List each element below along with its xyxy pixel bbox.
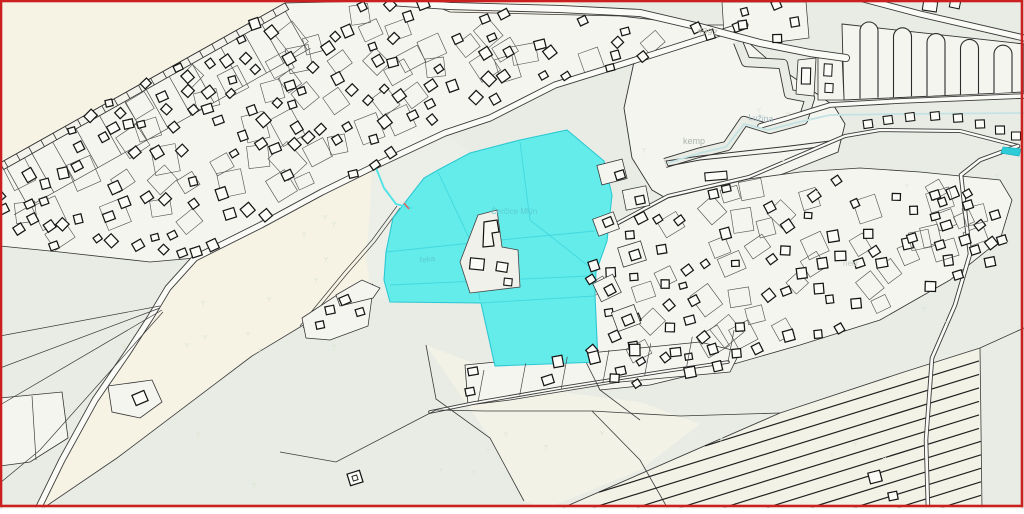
svg-text:Čerčice Mlýn: Čerčice Mlýn bbox=[491, 207, 537, 216]
svg-text:nekr: nekr bbox=[843, 259, 859, 268]
svg-text:kemp: kemp bbox=[683, 136, 705, 146]
svg-text:Lužina: Lužina bbox=[748, 112, 774, 124]
